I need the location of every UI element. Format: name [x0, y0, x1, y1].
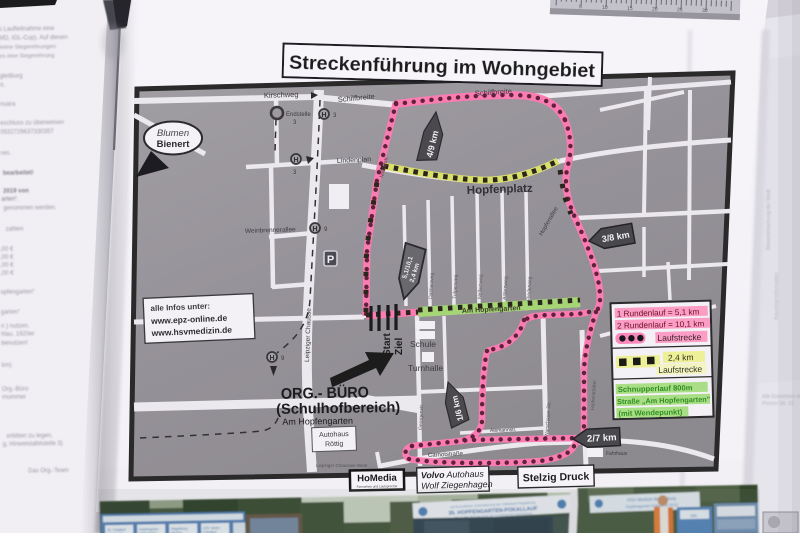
- svg-text:HoMedia: HoMedia: [357, 473, 397, 485]
- svg-text:20: 20: [652, 6, 658, 12]
- svg-text:2,4 km: 2,4 km: [668, 352, 694, 363]
- svg-text:(mit Wendepunkt): (mit Wendepunkt): [618, 407, 683, 418]
- svg-text:Ziel: Ziel: [394, 338, 405, 355]
- svg-text:ren.: ren.: [1, 151, 12, 157]
- svg-text:Leipziger Chaussee West: Leipziger Chaussee West: [316, 463, 368, 468]
- svg-text:nuara: nuara: [0, 102, 16, 108]
- svg-text:Laufstrecke: Laufstrecke: [657, 332, 701, 343]
- svg-text:rt.: rt.: [0, 83, 5, 89]
- svg-text:es eine Siegerehrung: es eine Siegerehrung: [0, 53, 54, 60]
- svg-text:opfengarten“: opfengarten“: [1, 289, 35, 295]
- svg-text:0532729637330357: 0532729637330357: [0, 129, 54, 136]
- svg-text:g, Hinweistafelstelle 3): g, Hinweistafelstelle 3): [3, 441, 63, 448]
- svg-text:Asternweg: Asternweg: [502, 276, 509, 300]
- svg-text:,00 €: ,00 €: [0, 247, 14, 253]
- svg-text:MD, IGL-Cup). Auf diesen: MD, IGL-Cup). Auf diesen: [0, 35, 68, 42]
- svg-text:Turnhalle: Turnhalle: [408, 363, 443, 373]
- svg-text:Endstelle: Endstelle: [286, 112, 311, 118]
- svg-text:2/7 km: 2/7 km: [587, 432, 617, 445]
- svg-text:km): km): [2, 363, 12, 369]
- svg-text:eschluss zu überweisen: eschluss zu überweisen: [0, 120, 64, 127]
- svg-text:keine Siegerehrungen: keine Siegerehrungen: [0, 44, 56, 51]
- svg-text:genommen werden.: genommen werden.: [3, 205, 56, 212]
- svg-text:zahlen: zahlen: [6, 227, 24, 233]
- svg-text:hlau. 1920er: hlau. 1920er: [1, 331, 34, 337]
- svg-text:Kirschweg: Kirschweg: [264, 90, 299, 100]
- svg-text:Röttig: Röttig: [325, 441, 344, 449]
- svg-text:Hopfenplatz: Hopfenplatz: [467, 183, 533, 197]
- svg-text:Das Org.-Team: Das Org.-Team: [28, 468, 69, 475]
- svg-text:n ) nutzen.: n ) nutzen.: [1, 323, 30, 329]
- svg-text:,00 €: ,00 €: [0, 263, 14, 269]
- svg-text:benutzen!: benutzen!: [1, 340, 28, 346]
- svg-text:5: 5: [579, 4, 582, 10]
- svg-text:Georgenstr.: Georgenstr.: [418, 404, 425, 430]
- svg-text:H: H: [321, 112, 326, 119]
- svg-text:,00 €: ,00 €: [0, 271, 14, 277]
- svg-text:Laufstrecke: Laufstrecke: [658, 364, 702, 375]
- svg-text:Tulpenweg: Tulpenweg: [452, 274, 459, 299]
- svg-text:2019 von: 2019 von: [3, 188, 29, 194]
- svg-text:H: H: [269, 355, 274, 362]
- svg-text:10: 10: [602, 5, 608, 11]
- svg-text:Start: Start: [382, 333, 393, 356]
- svg-text:Schule: Schule: [410, 339, 436, 349]
- svg-text:gleitburg: gleitburg: [0, 74, 23, 80]
- svg-text:Am Hopfengarten: Am Hopfengarten: [282, 416, 353, 427]
- svg-text:Fernsehen und Lautsprecher: Fernsehen und Lautsprecher: [357, 484, 399, 489]
- svg-text:Blumen: Blumen: [157, 128, 189, 139]
- svg-text:Alemannstr.: Alemannstr.: [490, 427, 517, 434]
- svg-text:Autohaus: Autohaus: [319, 431, 349, 439]
- svg-text:P: P: [327, 254, 334, 266]
- svg-text:rnummer: rnummer: [2, 394, 26, 400]
- svg-text:25: 25: [677, 7, 683, 13]
- svg-text:arten“.: arten“.: [1, 197, 19, 203]
- svg-text:Bekanntmachung der Stadt: Bekanntmachung der Stadt: [766, 189, 772, 250]
- svg-text:15: 15: [627, 6, 633, 12]
- svg-text:,00 €: ,00 €: [0, 255, 14, 261]
- svg-text:bearbeitet!: bearbeitet!: [3, 170, 34, 176]
- svg-text:Stelzig Druck: Stelzig Druck: [523, 471, 590, 485]
- svg-text:Fahrhaus: Fahrhaus: [606, 451, 628, 457]
- svg-text:Org.-Büro: Org.-Büro: [2, 386, 29, 392]
- svg-text:H: H: [293, 157, 298, 164]
- svg-text:30: 30: [702, 8, 708, 14]
- svg-text:erbitten zu legen,: erbitten zu legen,: [7, 433, 53, 440]
- svg-text:H: H: [312, 226, 317, 233]
- svg-text:Bienert: Bienert: [157, 139, 191, 150]
- svg-text:s Laufteilnahme eine: s Laufteilnahme eine: [0, 26, 55, 33]
- svg-text:garten“: garten“: [1, 310, 20, 316]
